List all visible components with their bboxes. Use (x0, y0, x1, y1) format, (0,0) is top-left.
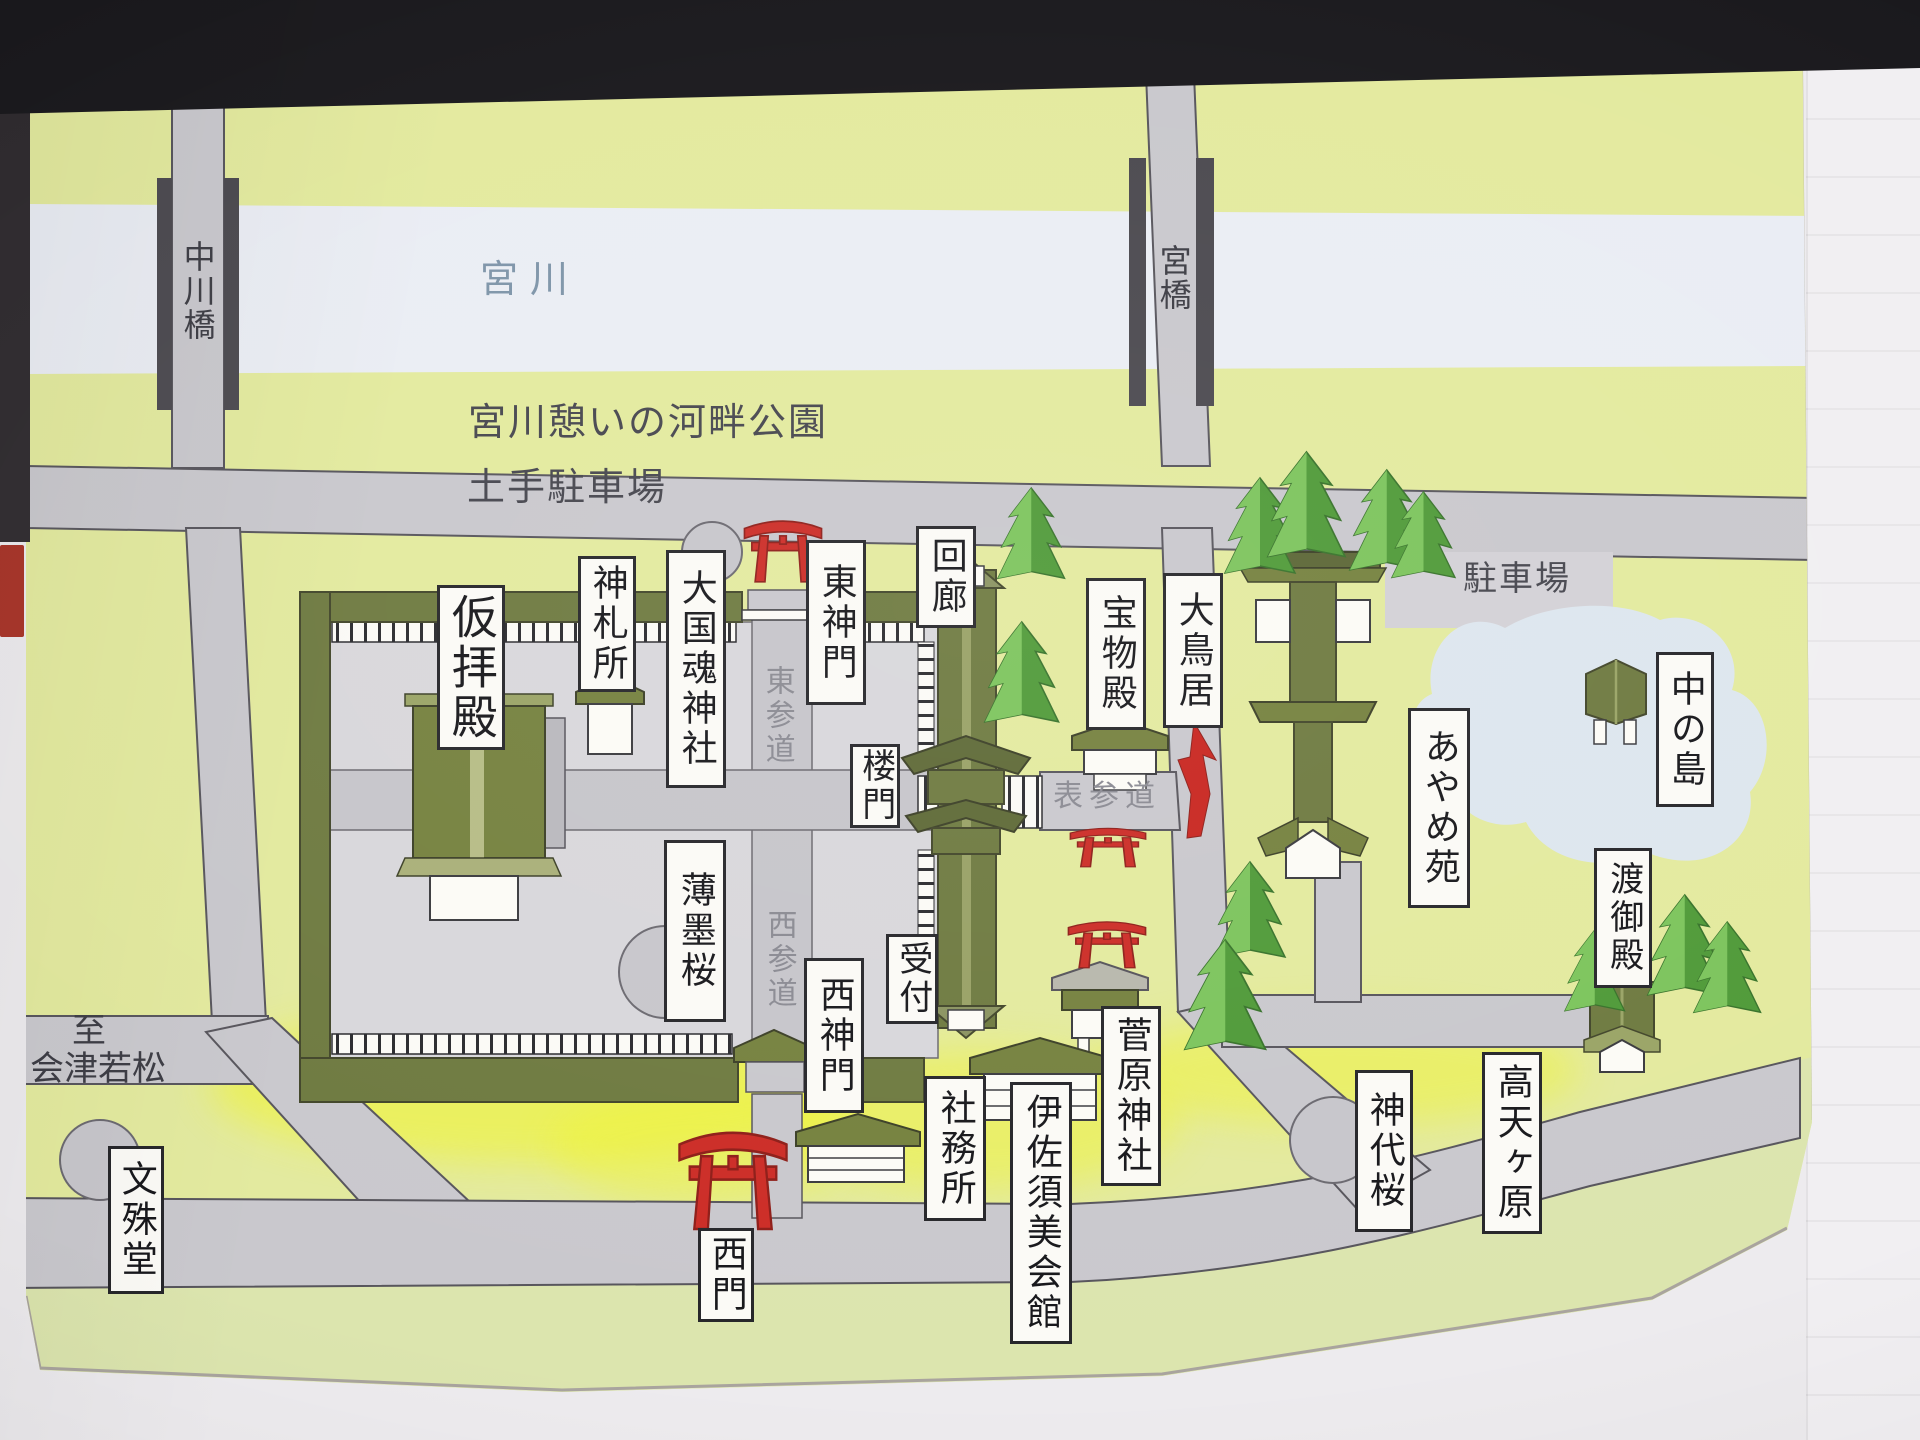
label-dote-chushajo: 土手駐車場 (462, 466, 672, 510)
label-takamagahara: 高天ヶ原 (1482, 1052, 1542, 1234)
photo-left-red-mark (0, 545, 24, 637)
label-nishi-shinmon: 西神門 (804, 958, 864, 1113)
shrine-map-photo: { "map": { "labels": { "kari_haiden": "仮… (0, 0, 1920, 1440)
label-sugawara-jinja: 菅原神社 (1101, 1006, 1161, 1186)
label-kari-haiden: 仮拝殿 (437, 585, 505, 750)
label-nishimon: 西門 (698, 1228, 754, 1322)
label-aizu-wakamatsu: 会津若松 (24, 1050, 172, 1090)
label-togyoden: 渡御殿 (1594, 848, 1652, 988)
label-usuzumi-zakura: 薄墨桜 (664, 840, 726, 1022)
label-ayameen: あやめ苑 (1408, 708, 1470, 908)
map-labels: 仮拝殿神札所大国魂神社東神門回廊宝物殿大鳥居楼門薄墨桜受付西神門社務所伊佐須美会… (0, 0, 1920, 1440)
label-miyabashi: 宮橋 (1152, 232, 1194, 324)
label-isasumi-kaikan: 伊佐須美会館 (1010, 1082, 1072, 1344)
label-itaru: 至 (68, 1012, 110, 1052)
label-romon: 楼門 (850, 744, 900, 828)
label-homotsuden: 宝物殿 (1086, 578, 1146, 730)
label-uketsuke: 受付 (886, 934, 938, 1024)
label-higashi-shinmon: 東神門 (806, 540, 866, 705)
map-page: 仮拝殿神札所大国魂神社東神門回廊宝物殿大鳥居楼門薄墨桜受付西神門社務所伊佐須美会… (0, 0, 1920, 1440)
label-shamusho: 社務所 (924, 1076, 986, 1221)
label-jindai-zakura: 神代桜 (1355, 1070, 1413, 1232)
photo-left-dark-strip (0, 96, 30, 542)
label-kairo: 回廊 (916, 526, 976, 628)
label-shinsatsusho: 神札所 (578, 556, 636, 692)
label-higashi-sando: 東参道 (758, 652, 796, 780)
label-kahan-koen: 宮川憩いの河畔公園 (458, 400, 838, 446)
label-nakagawabashi: 中川橋 (176, 228, 218, 354)
label-otorii: 大鳥居 (1163, 573, 1223, 728)
label-okunitama-jinja: 大国魂神社 (666, 550, 726, 788)
label-nakanoshima: 中の島 (1656, 652, 1714, 807)
label-omote-sando: 表参道 (1044, 778, 1170, 816)
page-right-margin (1806, 60, 1920, 1440)
label-miyakawa: 宮川 (460, 256, 600, 304)
label-nishi-sando: 西参道 (760, 896, 798, 1024)
label-monjudo: 文殊堂 (108, 1146, 164, 1294)
label-chushajo: 駐車場 (1452, 560, 1582, 600)
